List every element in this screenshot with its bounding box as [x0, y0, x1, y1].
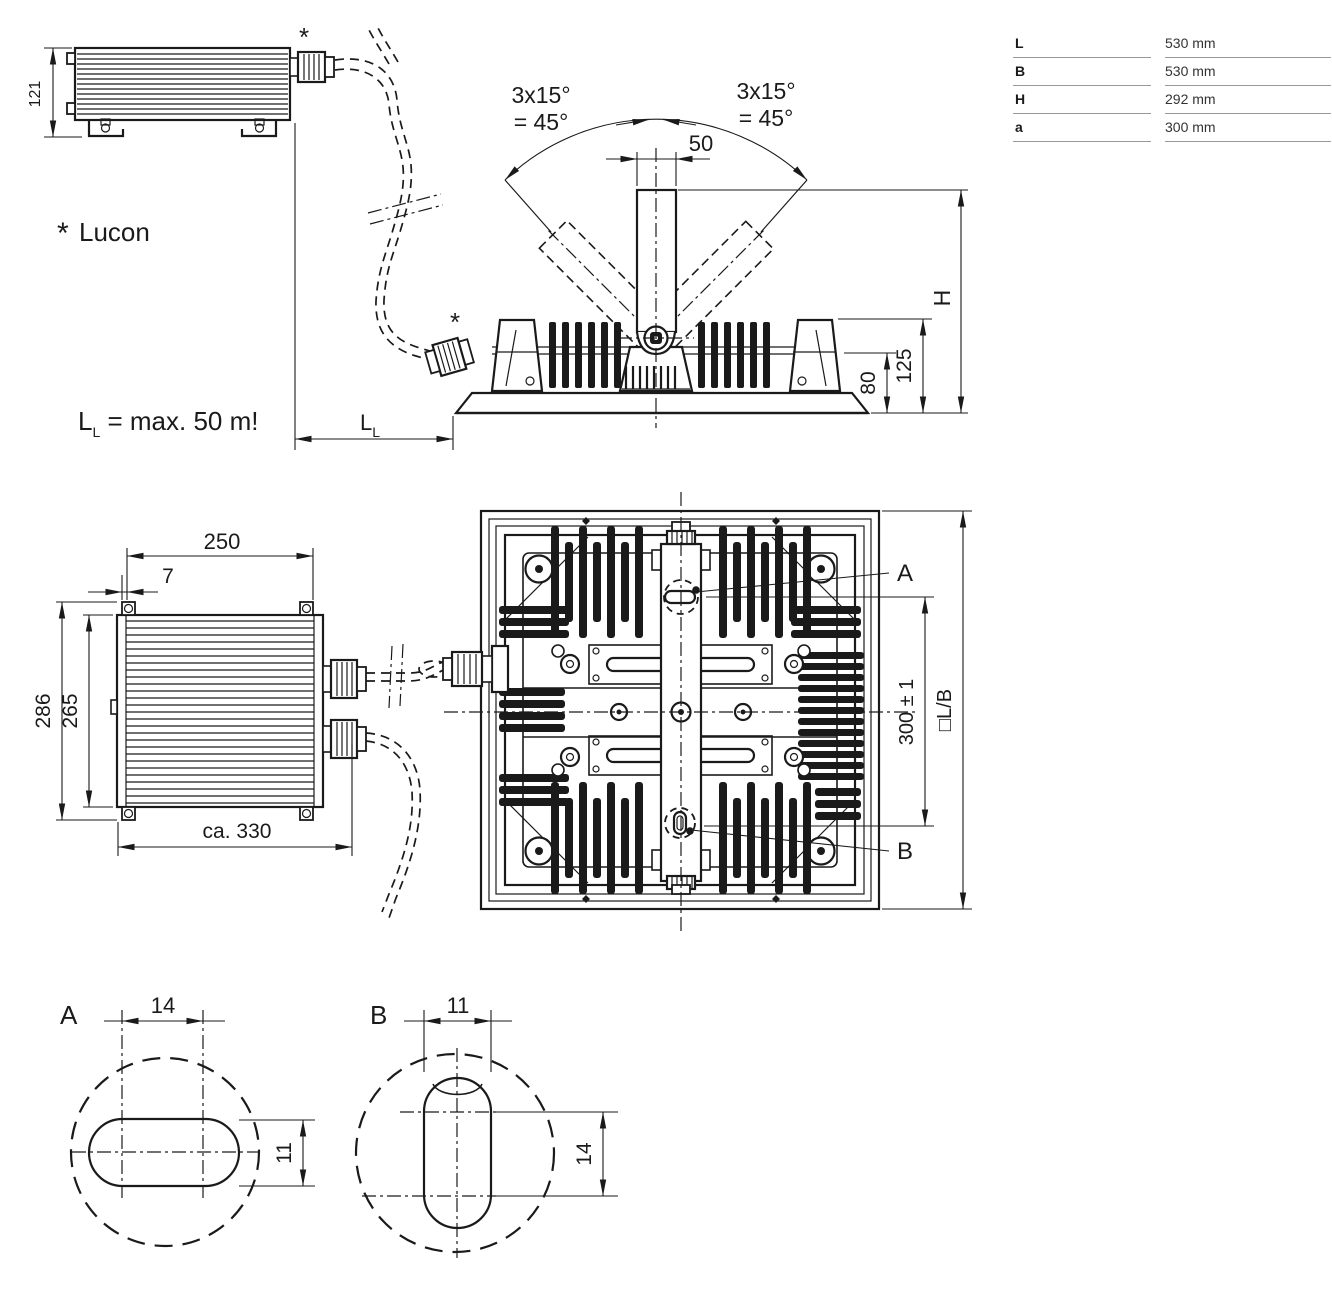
- power-cable-middle: [366, 644, 450, 918]
- tilt-note-left-2: = 45°: [514, 109, 569, 135]
- dim-label-330: ca. 330: [203, 820, 272, 843]
- ballast-cable-gland: [290, 52, 334, 82]
- dim-label-286: 286: [32, 693, 55, 728]
- dim-label-50: 50: [689, 131, 713, 156]
- spec-value-a: 300 mm: [1165, 114, 1331, 142]
- spec-value-B: 530 mm: [1165, 58, 1331, 86]
- detail-b-dim-14: 14: [496, 1112, 618, 1196]
- floodlight-top-view: A B 300 ± 1 □L/B: [443, 492, 972, 932]
- dim-50: 50: [606, 131, 713, 186]
- dim-label-121: 121: [27, 81, 44, 108]
- detail-a-dim-11: 11: [239, 1120, 315, 1186]
- spec-label-H: H: [1013, 86, 1151, 114]
- spec-label-L: L: [1013, 30, 1151, 58]
- dim-label-125: 125: [893, 348, 916, 383]
- detail-a-dim-11-label: 11: [273, 1142, 296, 1164]
- detail-a-title: A: [60, 1000, 78, 1030]
- floodlight-front-view: 3x15° = 45° 3x15° = 45° 50 H 125 8: [295, 78, 968, 450]
- detail-b-dim-14-label: 14: [573, 1142, 596, 1166]
- table-row: H 292 mm: [1013, 86, 1331, 114]
- dim-label-LL: LL: [360, 410, 380, 440]
- table-row: L 530 mm: [1013, 30, 1331, 58]
- floodlight-top-gland: [443, 646, 508, 692]
- table-row: a 300 mm: [1013, 114, 1331, 142]
- drawing-canvas: * 121 * Lucon LL = max. 50 m!: [0, 0, 1332, 1289]
- tilt-arc: 3x15° = 45° 3x15° = 45°: [505, 78, 807, 180]
- dim-label-250: 250: [204, 529, 241, 554]
- spec-value-H: 292 mm: [1165, 86, 1331, 114]
- detail-b-dim-11-label: 11: [447, 993, 470, 1018]
- callout-b-label: B: [897, 838, 913, 865]
- lucon-note: * Lucon: [57, 217, 150, 250]
- tilt-note-right-2: = 45°: [739, 105, 794, 131]
- detail-a-dim-14-label: 14: [151, 993, 175, 1018]
- floodlight-cable-gland: [424, 335, 475, 378]
- dim-label-H: H: [929, 290, 955, 307]
- spec-label-B: B: [1013, 58, 1151, 86]
- dim-250: 250: [127, 529, 313, 600]
- spec-label-a: a: [1013, 114, 1151, 142]
- dim-label-80: 80: [857, 371, 880, 394]
- dimension-spec-table: L 530 mm B 530 mm H 292 mm a 300 mm: [1013, 30, 1331, 142]
- callout-a-label: A: [897, 560, 913, 587]
- dim-LL: LL: [295, 123, 453, 450]
- dim-label-265: 265: [59, 693, 82, 728]
- dim-7: 7: [88, 565, 174, 600]
- tilt-note-right-1: 3x15°: [736, 78, 795, 104]
- tilt-note-left-1: 3x15°: [511, 82, 570, 108]
- gland-asterisk-marker: *: [299, 22, 309, 52]
- table-row: B 530 mm: [1013, 58, 1331, 86]
- ballast-output-gland-2: [323, 720, 366, 758]
- spec-value-L: 530 mm: [1165, 30, 1331, 58]
- detail-b-title: B: [370, 1000, 387, 1030]
- ballast-side-view: * 121 * Lucon LL = max. 50 m!: [27, 22, 334, 440]
- detail-b-view: B 11 14: [356, 993, 618, 1258]
- dim-label-7: 7: [162, 565, 174, 588]
- lucon-asterisk: *: [57, 217, 69, 250]
- dim-265: 265: [59, 615, 113, 807]
- ballast-top-view: 250 7 286 265 ca. 330: [32, 529, 450, 918]
- cable-length-note: LL = max. 50 m!: [78, 406, 259, 440]
- lucon-label: Lucon: [79, 217, 150, 247]
- dim-label-300: 300 ± 1: [896, 679, 918, 746]
- dim-label-LB: □L/B: [934, 689, 956, 731]
- power-cable-upper: [335, 26, 443, 360]
- cable-break-marks: [368, 194, 443, 224]
- technical-drawing-page: * 121 * Lucon LL = max. 50 m!: [0, 0, 1332, 1289]
- detail-a-view: A 14 11: [60, 993, 315, 1246]
- gland-asterisk-marker-2: *: [450, 307, 460, 337]
- ballast-output-gland-1: [323, 660, 366, 698]
